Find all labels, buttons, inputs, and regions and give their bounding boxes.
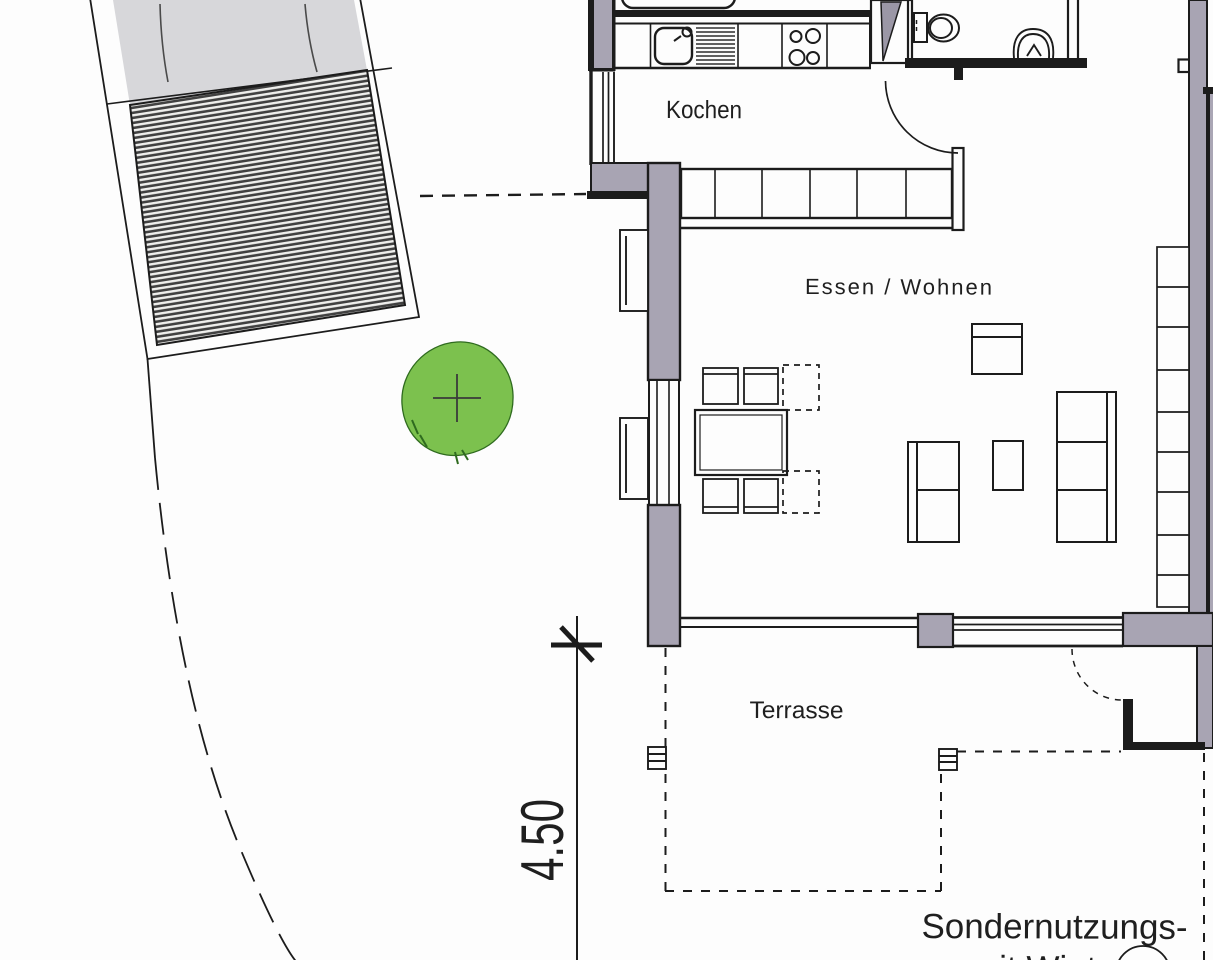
svg-text:Terrasse: Terrasse <box>749 697 843 724</box>
svg-text:Sondernutzungs-: Sondernutzungs- <box>921 907 1187 947</box>
svg-text:Essen / Wohnen: Essen / Wohnen <box>805 274 992 300</box>
svg-text:mit Wint: mit Wint <box>970 949 1097 960</box>
svg-text:4.50: 4.50 <box>509 799 576 881</box>
svg-text:Kochen: Kochen <box>666 96 742 124</box>
